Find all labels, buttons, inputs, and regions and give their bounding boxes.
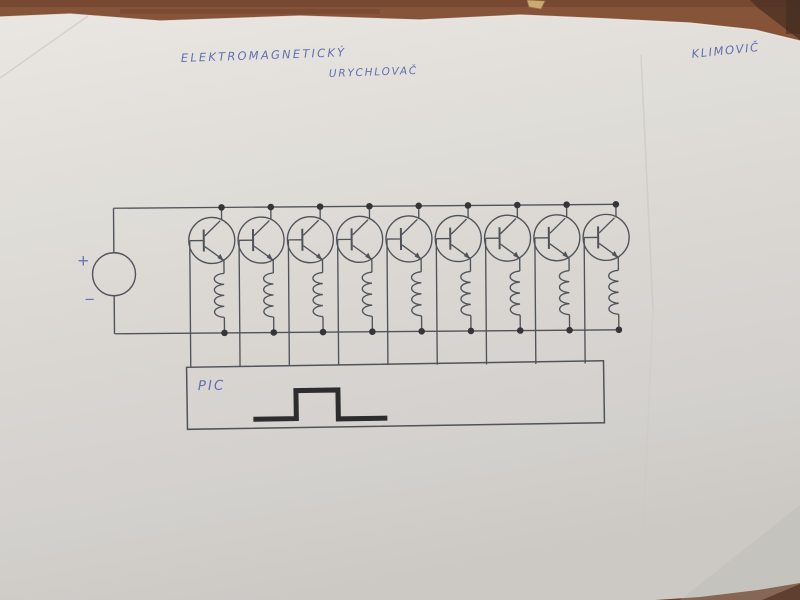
junction-dot: [267, 204, 274, 211]
junction-dot: [465, 202, 472, 209]
junction-dot: [468, 328, 475, 335]
junction-dot: [221, 330, 228, 337]
junction-dot: [270, 329, 277, 336]
junction-dot: [366, 203, 373, 210]
photo-of-schematic: ELEKTROMAGNETICKÝ URYCHLOVAČ KLIMOVIČ + …: [0, 0, 800, 600]
junction-dot: [317, 203, 324, 210]
junction-dot: [320, 329, 327, 336]
junction-dot: [514, 202, 521, 209]
minus-label: −: [84, 292, 95, 307]
junction-dot: [415, 203, 422, 210]
junction-dot: [218, 204, 225, 211]
photo-canvas: ELEKTROMAGNETICKÝ URYCHLOVAČ KLIMOVIČ + …: [0, 0, 800, 600]
paper-outline: [0, 14, 800, 600]
junction-dot: [418, 328, 425, 335]
junction-dot: [563, 201, 570, 208]
junction-dot: [616, 326, 623, 333]
junction-dot: [613, 201, 620, 208]
paper-sheet: [0, 14, 800, 600]
junction-dot: [517, 327, 524, 334]
junction-dot: [566, 327, 573, 334]
pic-label: PIC: [198, 378, 226, 394]
plus-label: +: [77, 251, 90, 269]
junction-dot: [369, 328, 376, 335]
